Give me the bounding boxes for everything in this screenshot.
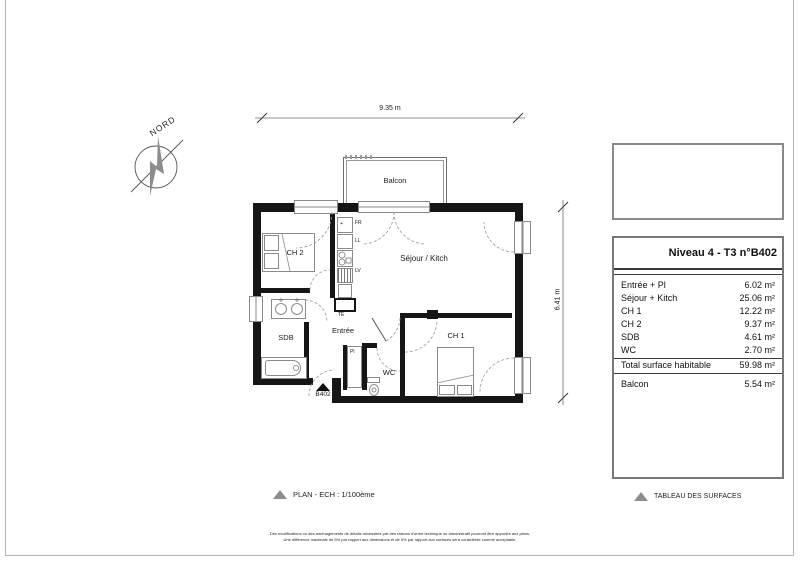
- row-label: SDB: [621, 331, 640, 344]
- row-value: 2.70 m²: [744, 344, 775, 357]
- row-label: Séjour + Kitch: [621, 292, 677, 305]
- row-label: CH 2: [621, 318, 642, 331]
- page-frame-left: [5, 0, 6, 556]
- pillow-icon: [264, 253, 279, 269]
- wall-segment: [332, 396, 523, 403]
- triangle-icon: [634, 492, 648, 501]
- room-label-ch2: CH 2: [286, 248, 303, 257]
- table-row: Entrée + Pl 6.02 m²: [614, 279, 782, 292]
- room-label-sejour: Séjour / Kitch: [400, 254, 448, 263]
- row-value: 25.06 m²: [739, 292, 775, 305]
- disclaimer-text: Des modifications ou des aménagements de…: [0, 531, 800, 542]
- row-label: Balcon: [621, 374, 649, 390]
- row-value: 4.61 m²: [744, 331, 775, 344]
- row-value: 6.02 m²: [744, 279, 775, 292]
- plan-legend: PLAN - ECH : 1/100ème: [273, 490, 375, 499]
- north-arrow-icon: [131, 136, 183, 196]
- wall-segment: [253, 319, 261, 385]
- wall-pillar: [427, 310, 438, 319]
- window-ch2: [294, 200, 338, 214]
- row-label: WC: [621, 344, 636, 357]
- floor-plan-page: NORD 9.35 m 6.41 m Balcon: [0, 0, 800, 565]
- wall-segment: [362, 346, 367, 390]
- disclaimer-line2: Une différence maximale de 5% par rappor…: [0, 537, 800, 543]
- wall-segment: [330, 212, 335, 298]
- empty-info-box: [612, 143, 784, 220]
- appliance-label-ll: LL: [355, 238, 361, 244]
- row-label: Total surface habitable: [621, 359, 711, 372]
- room-label-entree: Entrée: [332, 326, 354, 335]
- wall-segment: [515, 203, 523, 223]
- wall-segment: [400, 313, 512, 318]
- table-legend-text: TABLEAU DES SURFACES: [654, 493, 741, 500]
- room-label-wc: WC: [383, 368, 396, 377]
- window-sejour: [514, 221, 531, 254]
- row-value: 59.98 m²: [739, 359, 775, 372]
- table-row: Séjour + Kitch 25.06 m²: [614, 292, 782, 305]
- appliance-label-lv: LV: [355, 268, 361, 274]
- door-swing-arcs: [296, 212, 514, 396]
- kitchen-sink-unit: [337, 250, 353, 267]
- unit-number-label: B402: [315, 391, 330, 398]
- wall-segment: [335, 203, 360, 212]
- electrical-panel: [334, 298, 356, 312]
- table-row-balcony: Balcon 5.54 m²: [614, 374, 782, 390]
- wall-segment: [427, 203, 523, 212]
- row-value: 9.37 m²: [744, 318, 775, 331]
- toilet-tank: [367, 377, 380, 383]
- page-frame-right: [793, 0, 794, 556]
- window-ch1: [514, 357, 531, 394]
- appliance-label-fr: FR: [355, 220, 362, 226]
- room-label-balcony: Balcon: [384, 176, 407, 185]
- room-label-sdb: SDB: [278, 333, 293, 342]
- dimension-height-label: 6.41 m: [555, 285, 562, 315]
- wall-segment: [332, 378, 341, 403]
- dimension-width-label: 9.35 m: [379, 105, 400, 112]
- dishwasher-icon: [337, 268, 353, 283]
- title-divider: [614, 270, 782, 275]
- plan-legend-text: PLAN - ECH : 1/100ème: [293, 490, 375, 499]
- fridge-plus-mark: +: [340, 221, 343, 227]
- row-label: Entrée + Pl: [621, 279, 666, 292]
- wall-segment: [400, 318, 405, 397]
- room-label-pl: Pl: [350, 349, 354, 355]
- room-label-ch1: CH 1: [447, 331, 464, 340]
- washbasin-icon: [291, 303, 303, 315]
- table-row: SDB 4.61 m²: [614, 331, 782, 344]
- table-row: CH 1 12.22 m²: [614, 305, 782, 318]
- oven-icon: [338, 284, 352, 298]
- pillow-icon: [264, 235, 279, 251]
- window-sdb: [249, 296, 263, 322]
- pillow-icon: [439, 385, 455, 395]
- table-row: CH 2 9.37 m²: [614, 318, 782, 331]
- table-legend: TABLEAU DES SURFACES: [634, 492, 741, 501]
- washer-icon: [337, 234, 353, 249]
- row-value: 12.22 m²: [739, 305, 775, 318]
- toilet-bowl-icon: [369, 384, 379, 396]
- wall-segment: [253, 203, 261, 297]
- north-label: NORD: [148, 114, 178, 138]
- surface-table: Niveau 4 - T3 n°B402 Entrée + Pl 6.02 m²…: [612, 236, 784, 479]
- wall-segment: [253, 288, 310, 293]
- table-row: WC 2.70 m²: [614, 344, 782, 357]
- row-value: 5.54 m²: [744, 374, 775, 390]
- table-row-total: Total surface habitable 59.98 m²: [614, 359, 782, 372]
- balcony-hatch: [345, 155, 373, 159]
- washbasin-icon: [275, 303, 287, 315]
- wall-segment: [253, 378, 313, 385]
- triangle-icon: [273, 490, 287, 499]
- pillow-icon: [457, 385, 472, 395]
- window-balcony-door: [358, 201, 430, 213]
- bathtub-basin: [265, 360, 301, 376]
- page-frame-bottom: [5, 555, 794, 556]
- wall-segment: [515, 252, 523, 358]
- appliance-label-te: TE: [338, 312, 344, 318]
- row-label: CH 1: [621, 305, 642, 318]
- surface-table-title: Niveau 4 - T3 n°B402: [614, 238, 782, 270]
- entry-door-marker-icon: [316, 383, 330, 391]
